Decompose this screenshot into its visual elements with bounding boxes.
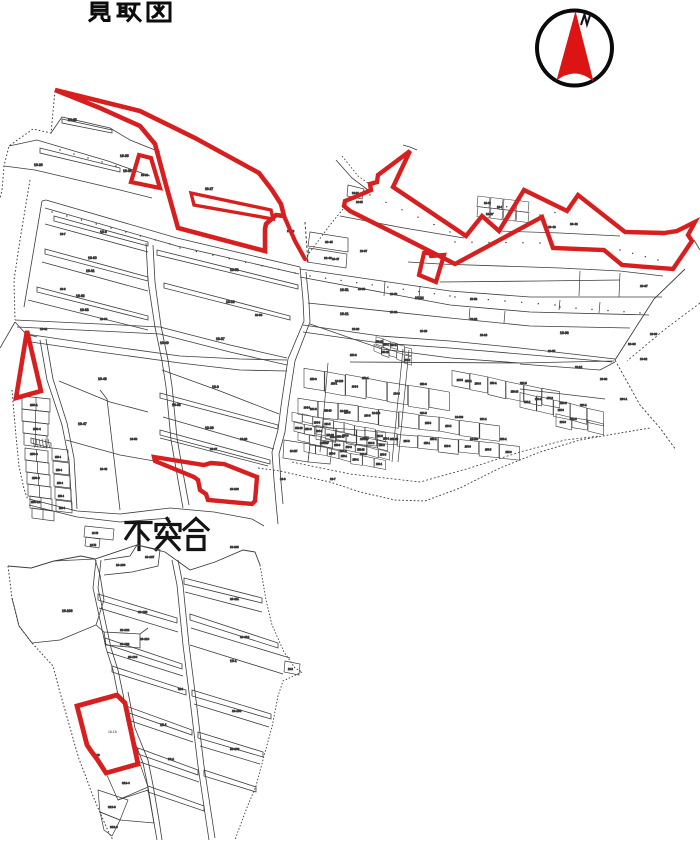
svg-text:16-37: 16-37	[210, 447, 218, 451]
svg-text:250-8: 250-8	[32, 476, 40, 480]
svg-text:16-130: 16-130	[470, 437, 479, 441]
svg-text:254-5: 254-5	[570, 417, 577, 421]
svg-text:16-1: 16-1	[168, 757, 174, 761]
svg-text:16-43: 16-43	[548, 225, 556, 229]
svg-text:16-35: 16-35	[120, 154, 129, 158]
svg-text:254-5: 254-5	[404, 359, 411, 362]
svg-text:204-8: 204-8	[403, 440, 410, 443]
svg-text:256-1: 256-1	[30, 403, 38, 407]
svg-text:16-40: 16-40	[160, 341, 169, 345]
svg-text:16-93: 16-93	[600, 377, 608, 381]
svg-text:204-1: 204-1	[480, 417, 487, 421]
svg-text:16-107: 16-107	[290, 450, 298, 453]
svg-text:16-88: 16-88	[255, 313, 263, 317]
svg-text:256-1: 256-1	[490, 381, 497, 385]
svg-text:16-27: 16-27	[205, 187, 213, 191]
svg-text:16-108: 16-108	[232, 709, 242, 713]
svg-text:16-98: 16-98	[560, 331, 569, 335]
svg-text:204-8: 204-8	[420, 411, 427, 415]
svg-text:313-4: 313-4	[122, 781, 130, 785]
svg-text:16-46: 16-46	[324, 256, 332, 260]
svg-text:259-4: 259-4	[56, 470, 63, 472]
svg-text:250-18: 250-18	[511, 391, 519, 394]
svg-text:16-41: 16-41	[40, 327, 48, 331]
svg-text:254-5: 254-5	[457, 379, 464, 382]
svg-text:204-1: 204-1	[535, 397, 542, 401]
svg-text:254-5: 254-5	[380, 454, 387, 457]
svg-text:16-130: 16-130	[335, 379, 344, 383]
svg-text:254-5: 254-5	[314, 421, 321, 424]
svg-text:16-20: 16-20	[352, 327, 360, 331]
svg-text:16-97: 16-97	[640, 284, 648, 288]
svg-text:16-130: 16-130	[320, 441, 329, 445]
svg-text:254-9: 254-9	[329, 452, 336, 455]
svg-text:16-47: 16-47	[78, 422, 87, 426]
svg-text:16-1: 16-1	[160, 723, 167, 727]
svg-text:256-1: 256-1	[430, 437, 437, 441]
svg-text:16-22: 16-22	[390, 310, 398, 314]
svg-text:16-41: 16-41	[484, 201, 491, 205]
svg-text:256-1: 256-1	[362, 376, 369, 380]
svg-text:16-36: 16-36	[240, 437, 248, 441]
svg-text:204-1: 204-1	[390, 343, 397, 347]
svg-text:204-8: 204-8	[352, 386, 359, 389]
svg-text:16-37: 16-37	[360, 249, 368, 253]
svg-text:16-87: 16-87	[216, 337, 225, 341]
svg-text:254-5: 254-5	[377, 435, 384, 438]
svg-text:16-53: 16-53	[470, 297, 478, 301]
svg-text:250-3: 250-3	[444, 445, 451, 448]
svg-text:16-109: 16-109	[230, 747, 240, 751]
svg-text:250-3: 250-3	[379, 444, 386, 447]
svg-text:256-4: 256-4	[33, 427, 41, 431]
svg-text:250-3: 250-3	[30, 452, 38, 456]
svg-text:204-8: 204-8	[520, 381, 527, 385]
svg-text:16-7: 16-7	[330, 477, 336, 481]
svg-text:16-102: 16-102	[120, 628, 130, 632]
svg-text:204-8: 204-8	[310, 407, 317, 411]
svg-text:16-58: 16-58	[230, 268, 239, 272]
svg-text:254-9: 254-9	[305, 427, 312, 431]
svg-text:204-8: 204-8	[368, 442, 375, 445]
svg-text:250-3: 250-3	[330, 435, 337, 439]
svg-text:204-1: 204-1	[620, 397, 628, 401]
svg-text:16-130: 16-130	[455, 415, 464, 419]
svg-text:16-130: 16-130	[360, 437, 369, 441]
svg-text:204-8: 204-8	[364, 414, 371, 417]
svg-text:250-18: 250-18	[337, 435, 345, 438]
svg-text:16-25: 16-25	[68, 118, 77, 122]
svg-text:16-100: 16-100	[230, 487, 239, 491]
svg-text:254-9: 254-9	[505, 451, 512, 454]
svg-text:16-62: 16-62	[76, 294, 85, 298]
svg-text:16-88: 16-88	[226, 300, 235, 304]
svg-text:16-104: 16-104	[128, 655, 138, 659]
svg-text:16-42: 16-42	[486, 212, 493, 216]
svg-text:16-103: 16-103	[120, 642, 130, 646]
svg-text:254-9: 254-9	[475, 382, 482, 385]
svg-text:254-5: 254-5	[485, 449, 492, 452]
svg-text:256-1: 256-1	[424, 442, 431, 445]
svg-text:313-9: 313-9	[110, 825, 118, 829]
svg-text:16-42: 16-42	[570, 222, 578, 226]
svg-text:254-9: 254-9	[350, 353, 357, 357]
svg-text:16-107: 16-107	[145, 555, 155, 559]
svg-text:16-45: 16-45	[325, 240, 333, 244]
svg-text:16-7: 16-7	[60, 232, 66, 236]
svg-text:16-1: 16-1	[230, 659, 237, 663]
svg-text:250-18: 250-18	[357, 448, 365, 451]
svg-text:16-51: 16-51	[340, 288, 349, 292]
svg-text:16-60: 16-60	[88, 256, 97, 260]
svg-text:16-2: 16-2	[288, 668, 293, 671]
svg-text:250-3: 250-3	[334, 444, 341, 447]
svg-text:250-3: 250-3	[420, 382, 427, 386]
svg-text:16-78: 16-78	[90, 544, 97, 547]
svg-text:16-8: 16-8	[60, 287, 66, 291]
svg-text:16-95: 16-95	[548, 349, 556, 353]
svg-text:250-18: 250-18	[390, 437, 399, 441]
svg-text:16-18: 16-18	[480, 333, 488, 337]
svg-text:313-8: 313-8	[108, 805, 116, 809]
svg-text:16-63: 16-63	[80, 308, 89, 312]
svg-text:16-52: 16-52	[390, 292, 398, 296]
svg-text:314: 314	[178, 687, 183, 691]
svg-text:256-1: 256-1	[383, 437, 390, 440]
svg-text:16-48: 16-48	[98, 377, 107, 381]
svg-text:16-4: 16-4	[497, 205, 503, 209]
svg-text:250-18: 250-18	[324, 409, 332, 412]
svg-text:16-50: 16-50	[130, 437, 138, 441]
svg-text:204-8: 204-8	[394, 393, 401, 396]
svg-text:16-130: 16-130	[372, 411, 381, 415]
svg-text:250-3: 250-3	[310, 377, 317, 381]
svg-text:16-99: 16-99	[628, 342, 636, 346]
svg-text:250-3: 250-3	[346, 446, 353, 449]
svg-text:16-64: 16-64	[100, 317, 108, 321]
svg-text:259-4: 259-4	[55, 457, 62, 459]
svg-text:256-1: 256-1	[500, 437, 507, 441]
svg-text:204-1: 204-1	[580, 403, 587, 407]
svg-text:16-111: 16-111	[230, 597, 239, 601]
svg-text:259-4: 259-4	[58, 496, 65, 498]
svg-text:256-1: 256-1	[331, 383, 338, 386]
svg-text:16-108: 16-108	[138, 610, 148, 614]
svg-text:16-108: 16-108	[230, 545, 239, 549]
svg-text:250-18: 250-18	[381, 351, 389, 354]
svg-text:16-94: 16-94	[575, 365, 583, 369]
svg-text:16-49: 16-49	[100, 467, 108, 471]
svg-text:254-5: 254-5	[425, 422, 432, 425]
svg-text:204-8: 204-8	[340, 449, 347, 453]
svg-text:16-50: 16-50	[358, 287, 366, 291]
svg-text:254-9: 254-9	[558, 409, 565, 412]
svg-text:259-4: 259-4	[57, 483, 64, 485]
svg-text:16-100: 16-100	[116, 563, 126, 567]
svg-text:16-21: 16-21	[340, 312, 349, 316]
svg-text:256-1: 256-1	[465, 379, 472, 383]
svg-text:256-1: 256-1	[341, 455, 348, 458]
svg-text:16-113: 16-113	[240, 635, 249, 639]
svg-text:16-61: 16-61	[86, 269, 95, 273]
svg-text:256-1: 256-1	[383, 343, 390, 346]
svg-text:250-18: 250-18	[295, 427, 303, 430]
svg-text:254-9: 254-9	[465, 446, 472, 449]
svg-text:16-9: 16-9	[212, 385, 219, 389]
svg-text:256-1: 256-1	[353, 458, 360, 461]
svg-text:16-6: 16-6	[100, 230, 107, 234]
svg-text:16-35: 16-35	[356, 200, 363, 204]
svg-text:16-8: 16-8	[280, 477, 286, 481]
svg-text:204-8: 204-8	[560, 421, 567, 424]
svg-text:254-5: 254-5	[524, 401, 531, 404]
svg-text:16-28: 16-28	[141, 173, 149, 177]
svg-text:16-26: 16-26	[34, 163, 43, 167]
svg-text:16-106: 16-106	[62, 609, 73, 613]
svg-text:254-5: 254-5	[445, 425, 452, 428]
svg-text:16-39: 16-39	[205, 426, 214, 430]
svg-text:16-110: 16-110	[140, 637, 149, 641]
svg-text:16-96: 16-96	[650, 332, 658, 336]
svg-text:204-8: 204-8	[560, 401, 567, 405]
svg-text:254-5: 254-5	[324, 423, 331, 426]
svg-text:16-79: 16-79	[92, 532, 99, 535]
svg-text:204-8: 204-8	[360, 452, 367, 456]
svg-text:16-23: 16-23	[470, 317, 478, 321]
svg-text:16-47: 16-47	[332, 257, 340, 261]
svg-text:16-92: 16-92	[640, 357, 648, 361]
svg-text:16-38: 16-38	[172, 403, 181, 407]
svg-text:16-16: 16-16	[108, 730, 117, 734]
svg-text:256-1: 256-1	[376, 463, 383, 466]
svg-text:16-19: 16-19	[420, 329, 428, 333]
svg-text:16-130: 16-130	[340, 409, 349, 413]
